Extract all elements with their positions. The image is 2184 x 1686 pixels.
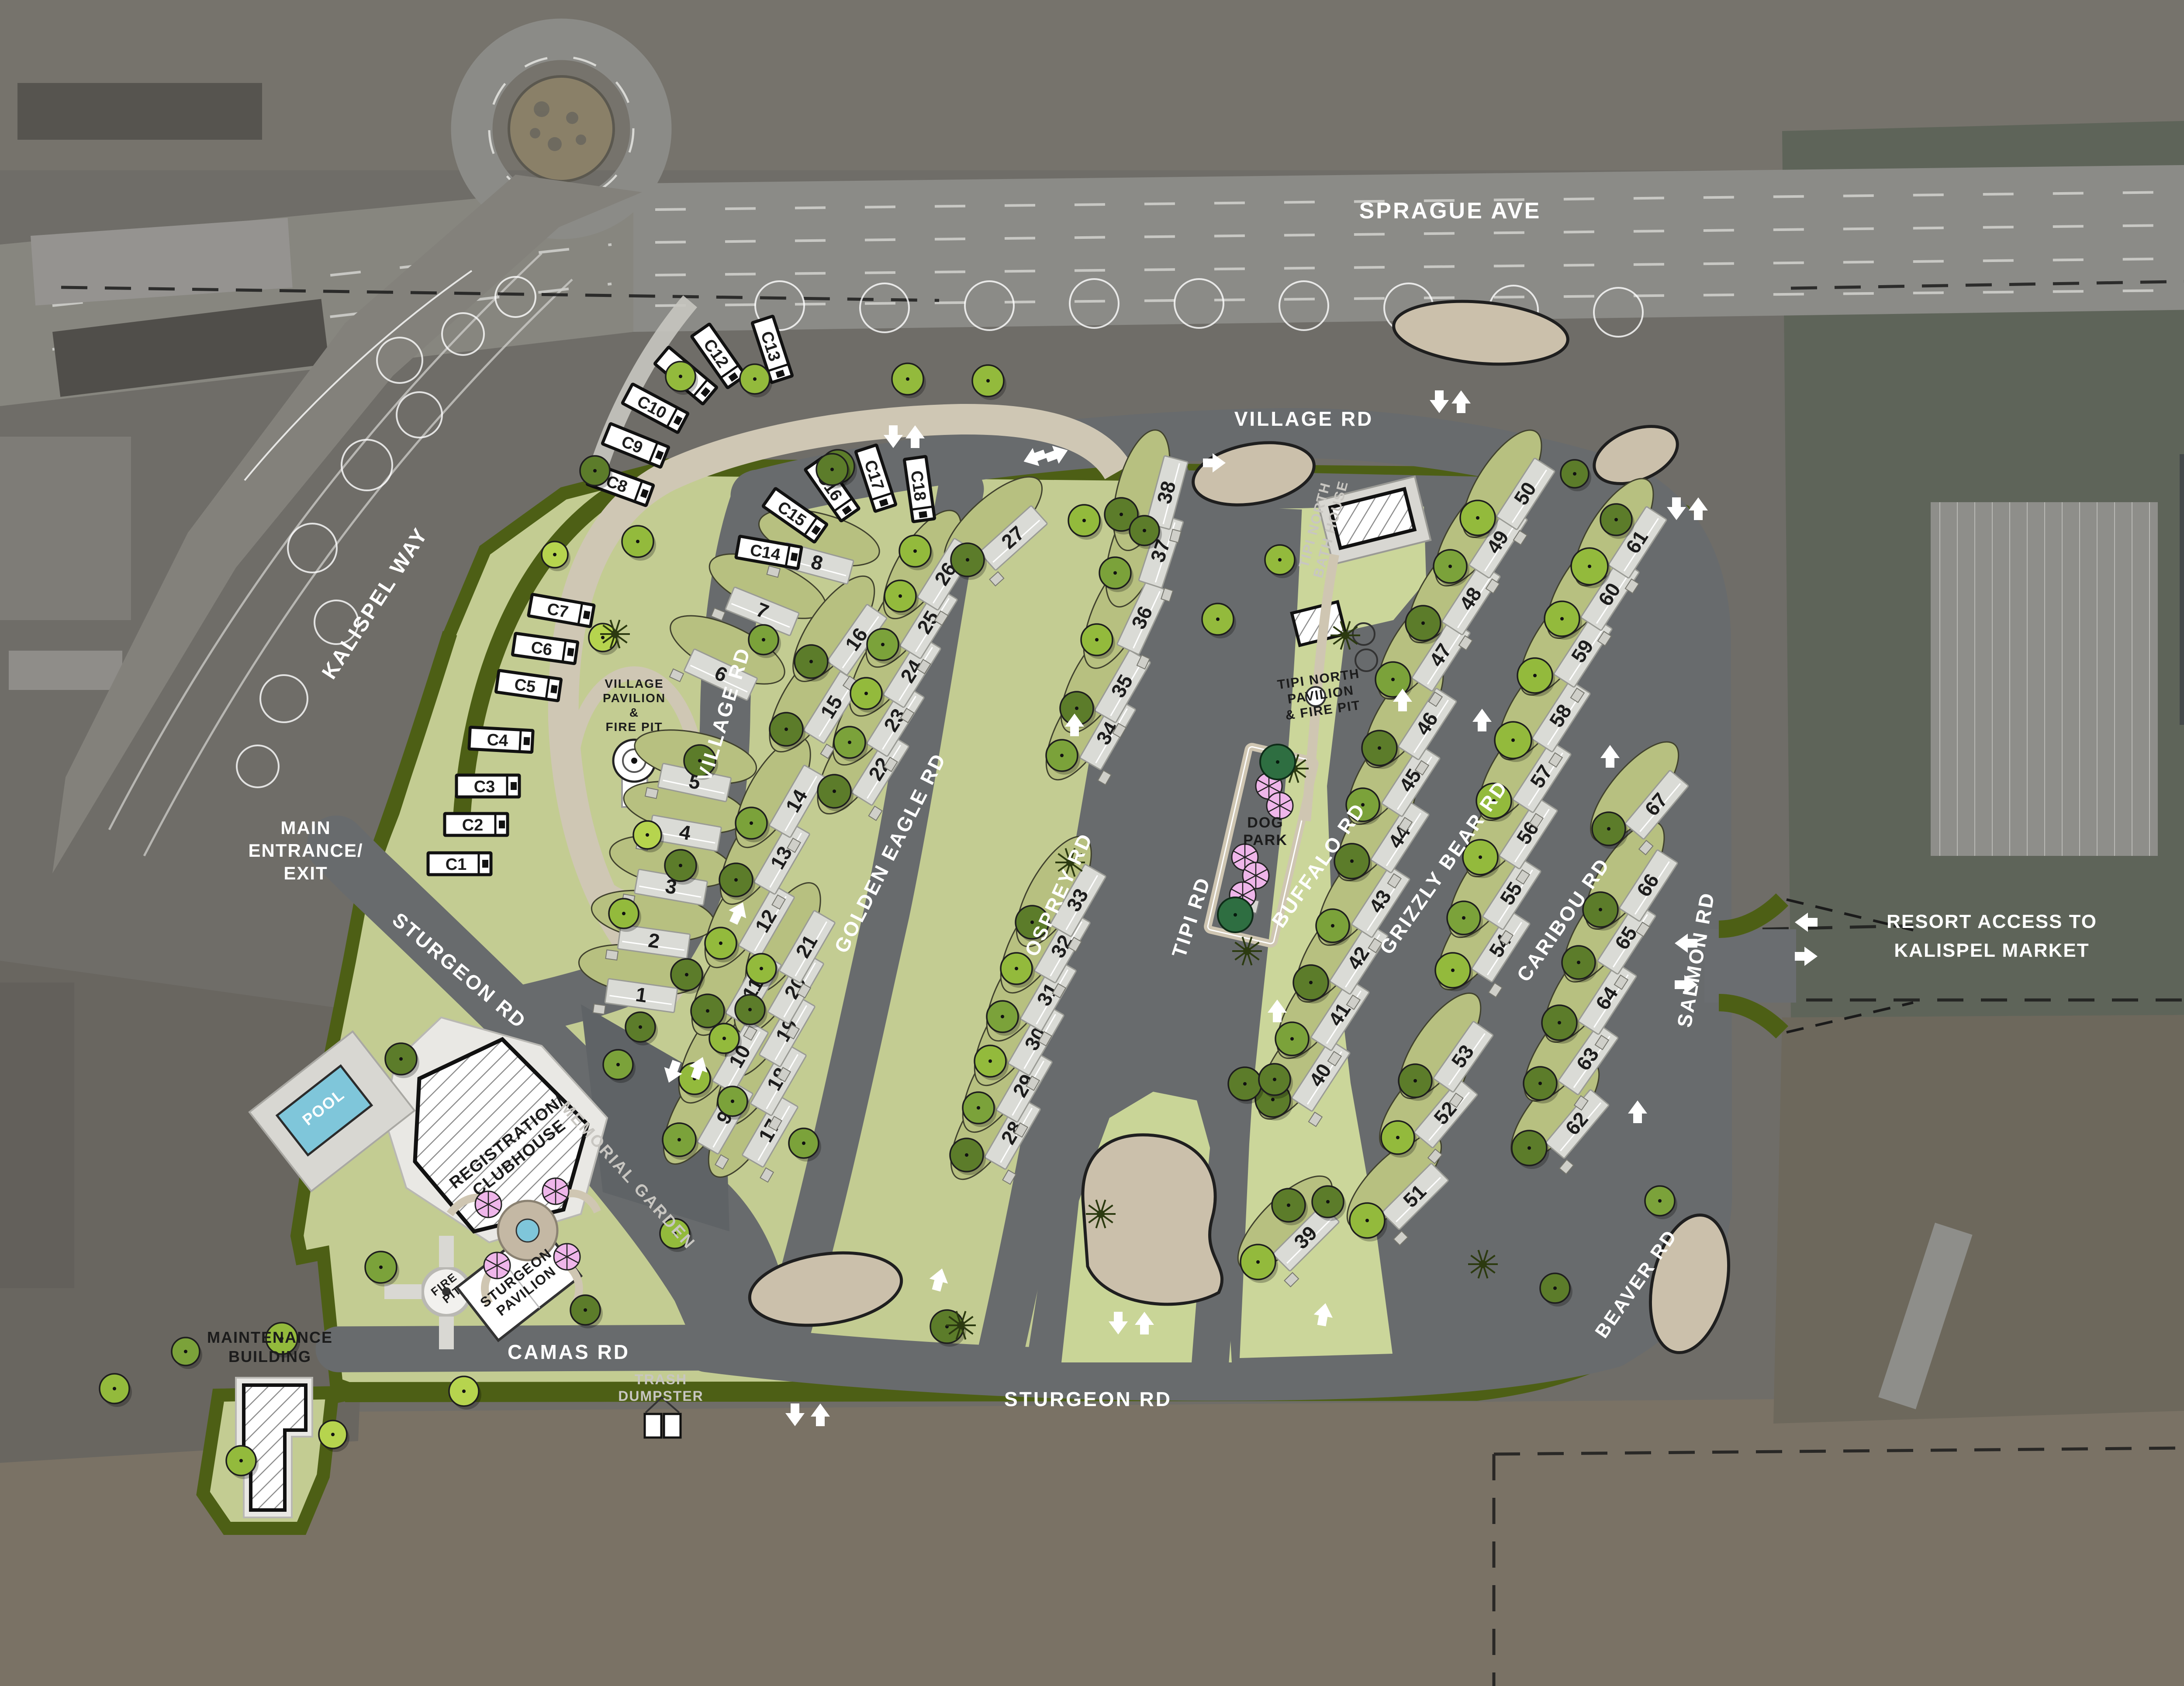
- tree-center-dot: [1577, 961, 1580, 964]
- utility-pedestal: [593, 1004, 605, 1014]
- tree-center-dot: [1614, 518, 1618, 521]
- tree-center-dot: [1001, 1015, 1004, 1018]
- tree-center-dot: [1553, 1286, 1557, 1290]
- tree-center-dot: [706, 1009, 709, 1013]
- tree-center-dot: [988, 1059, 992, 1063]
- facility-label-line: DOG: [1247, 814, 1283, 831]
- cabin-number-C1: C1: [446, 855, 467, 874]
- facility-label-line: BUILDING: [228, 1348, 311, 1365]
- tree-center-dot: [1290, 1037, 1294, 1041]
- tree-center-dot: [616, 1063, 620, 1066]
- tree-center-dot: [1511, 738, 1515, 742]
- tree-center-dot: [677, 1138, 681, 1141]
- tree-center-dot: [760, 967, 763, 970]
- tree-center-dot: [762, 638, 765, 641]
- tree-center-dot: [331, 1433, 335, 1436]
- cabin-number-C3: C3: [474, 778, 495, 796]
- tree-center-dot: [1391, 678, 1395, 681]
- cabin-hitch-mark: [550, 685, 557, 693]
- cabin-pad-divider: [520, 730, 521, 752]
- pink-ornamental-tree: [554, 1244, 580, 1270]
- facility-label-line: TRASH: [635, 1372, 687, 1387]
- tree-center-dot: [1599, 908, 1602, 911]
- cabin-hitch-mark: [511, 782, 517, 790]
- tree-center-dot: [1060, 754, 1064, 757]
- shrub-core: [1341, 631, 1349, 639]
- tree-center-dot: [753, 377, 757, 381]
- cabin-pad-C2: C2: [445, 814, 508, 835]
- cabin-pad-C1: C1: [428, 853, 491, 875]
- tree-center-dot: [379, 1265, 383, 1269]
- tree-center-dot: [1527, 1146, 1531, 1150]
- cabin-hitch-mark: [499, 821, 505, 828]
- cabin-hitch-mark: [482, 860, 488, 868]
- tree-center-dot: [1451, 969, 1455, 972]
- road-label-village-rd: VILLAGE RD: [1234, 407, 1374, 430]
- cabin-pad-C3: C3: [456, 775, 519, 797]
- facility-label-line: EXIT: [283, 863, 328, 883]
- shrub-core: [611, 630, 619, 638]
- tree-center-dot: [1413, 1079, 1417, 1083]
- cabin-number-C7: C7: [546, 600, 570, 622]
- tree-center-dot: [748, 1008, 752, 1011]
- tree-center-dot: [1326, 1200, 1330, 1203]
- facility-label-line: PARK: [1243, 832, 1288, 848]
- tree-center-dot: [1273, 1078, 1276, 1081]
- tree-center-dot: [1421, 621, 1425, 625]
- road-label-sprague-ave: SPRAGUE AVE: [1359, 198, 1541, 224]
- facility-label-line: ENTRANCE/: [248, 840, 363, 861]
- facility-label-line: DUMPSTER: [618, 1388, 704, 1404]
- tree-center-dot: [113, 1387, 116, 1390]
- tree-center-dot: [1560, 617, 1564, 621]
- tree-center-dot: [1365, 1219, 1369, 1222]
- road-label-sturgeon-rd: STURGEON RD: [1004, 1388, 1172, 1410]
- tree-center-dot: [1479, 855, 1482, 859]
- evergreen-dot: [1234, 913, 1237, 917]
- evergreen-tree: [1218, 897, 1253, 932]
- facility-label-line: KALISPEL MARKET: [1894, 940, 2089, 961]
- tree-center-dot: [1476, 516, 1479, 520]
- tree-center-dot: [1082, 519, 1086, 522]
- tree-center-dot: [734, 878, 738, 882]
- tree-center-dot: [1143, 529, 1146, 532]
- tree-center-dot: [784, 727, 788, 731]
- tree-center-dot: [1538, 1082, 1542, 1085]
- facility-label-line: FIRE PIT: [605, 720, 663, 734]
- tree-center-dot: [1558, 1021, 1561, 1024]
- road-label-camas-rd: CAMAS RD: [508, 1341, 630, 1363]
- tree-center-dot: [1533, 674, 1537, 677]
- tree-center-dot: [1113, 571, 1117, 575]
- shrub-core: [957, 1321, 965, 1329]
- tree-center-dot: [584, 1308, 587, 1312]
- tree-center-dot: [639, 1025, 642, 1029]
- cabin-hitch-mark: [919, 511, 927, 518]
- tree-center-dot: [986, 379, 990, 383]
- tree-center-dot: [722, 1037, 726, 1040]
- tree-center-dot: [1075, 707, 1078, 710]
- tree-center-dot: [1216, 617, 1220, 621]
- tree-center-dot: [1462, 916, 1465, 920]
- cabin-number-C4: C4: [487, 731, 509, 750]
- tree-center-dot: [184, 1350, 187, 1353]
- site-plan-svg: 1234567891011121314151617181920212223242…: [0, 0, 2184, 1686]
- tree-center-dot: [1350, 859, 1354, 863]
- tree-center-dot: [1287, 1203, 1290, 1207]
- tree-center-dot: [636, 540, 639, 543]
- tree-center-dot: [830, 468, 834, 471]
- tree-center-dot: [399, 1057, 403, 1061]
- cabin-hitch-mark: [567, 648, 574, 656]
- tree-center-dot: [1095, 638, 1099, 641]
- tree-center-dot: [553, 553, 556, 556]
- tree-center-dot: [906, 377, 909, 381]
- evergreen-tree: [1260, 745, 1295, 779]
- facility-label-line: &: [629, 706, 639, 719]
- facility-label-line: MAINTENANCE: [207, 1328, 333, 1346]
- cabin-number-C2: C2: [462, 816, 484, 834]
- facility-label-line: PAVILION: [603, 691, 666, 705]
- cabin-number-C5: C5: [513, 676, 537, 696]
- tree-center-dot: [1120, 513, 1123, 516]
- tree-center-dot: [462, 1389, 466, 1393]
- tree-center-dot: [685, 973, 688, 976]
- tree-center-dot: [802, 1141, 805, 1145]
- tree-center-dot: [833, 790, 836, 793]
- facility-label-line: RESORT ACCESS TO: [1887, 911, 2097, 932]
- cabin-pad-C4: C4: [469, 727, 533, 752]
- tree-center-dot: [1309, 981, 1313, 984]
- tree-center-dot: [1588, 565, 1591, 568]
- tree-center-dot: [750, 821, 753, 825]
- tree-center-dot: [1015, 967, 1018, 970]
- tree-center-dot: [965, 1153, 968, 1157]
- tree-center-dot: [731, 1100, 734, 1103]
- tree-center-dot: [1573, 472, 1576, 476]
- tree-center-dot: [881, 643, 885, 646]
- tree-center-dot: [1658, 1199, 1662, 1203]
- tree-center-dot: [809, 660, 813, 663]
- tree-center-dot: [1256, 1260, 1260, 1264]
- tree-center-dot: [622, 912, 625, 915]
- pink-ornamental-tree: [484, 1252, 510, 1279]
- tree-center-dot: [977, 1106, 980, 1110]
- tree-center-dot: [601, 636, 605, 639]
- shrub-core: [1097, 1210, 1105, 1218]
- tree-center-dot: [1243, 1082, 1247, 1086]
- tree-center-dot: [1607, 827, 1610, 831]
- tree-center-dot: [1278, 558, 1282, 562]
- site-plan-canvas: 1234567891011121314151617181920212223242…: [0, 0, 2184, 1686]
- utility-pedestal: [645, 788, 658, 799]
- tree-center-dot: [1448, 565, 1452, 568]
- tree-center-dot: [966, 558, 969, 562]
- tree-center-dot: [1378, 746, 1381, 750]
- tree-center-dot: [898, 594, 902, 598]
- tree-center-dot: [848, 741, 851, 744]
- tree-center-dot: [679, 864, 682, 867]
- tree-center-dot: [864, 692, 868, 695]
- tree-center-dot: [239, 1459, 243, 1462]
- cabin-number-C6: C6: [530, 638, 553, 659]
- facility-label-line: VILLAGE: [605, 677, 663, 690]
- tree-center-dot: [913, 549, 917, 553]
- tree-center-dot: [1331, 924, 1334, 927]
- pink-ornamental-tree: [543, 1178, 569, 1204]
- facility-label-line: MAIN: [280, 817, 331, 838]
- cabin-hitch-mark: [523, 737, 530, 745]
- tree-center-dot: [593, 469, 597, 472]
- shrub-core: [1479, 1260, 1487, 1268]
- tree-center-dot: [1396, 1136, 1400, 1139]
- tree-center-dot: [679, 375, 682, 378]
- utility-pedestal: [605, 950, 618, 960]
- tree-center-dot: [719, 941, 722, 945]
- tree-center-dot: [646, 833, 649, 837]
- shrub-core: [1243, 947, 1251, 955]
- evergreen-dot: [1276, 760, 1279, 764]
